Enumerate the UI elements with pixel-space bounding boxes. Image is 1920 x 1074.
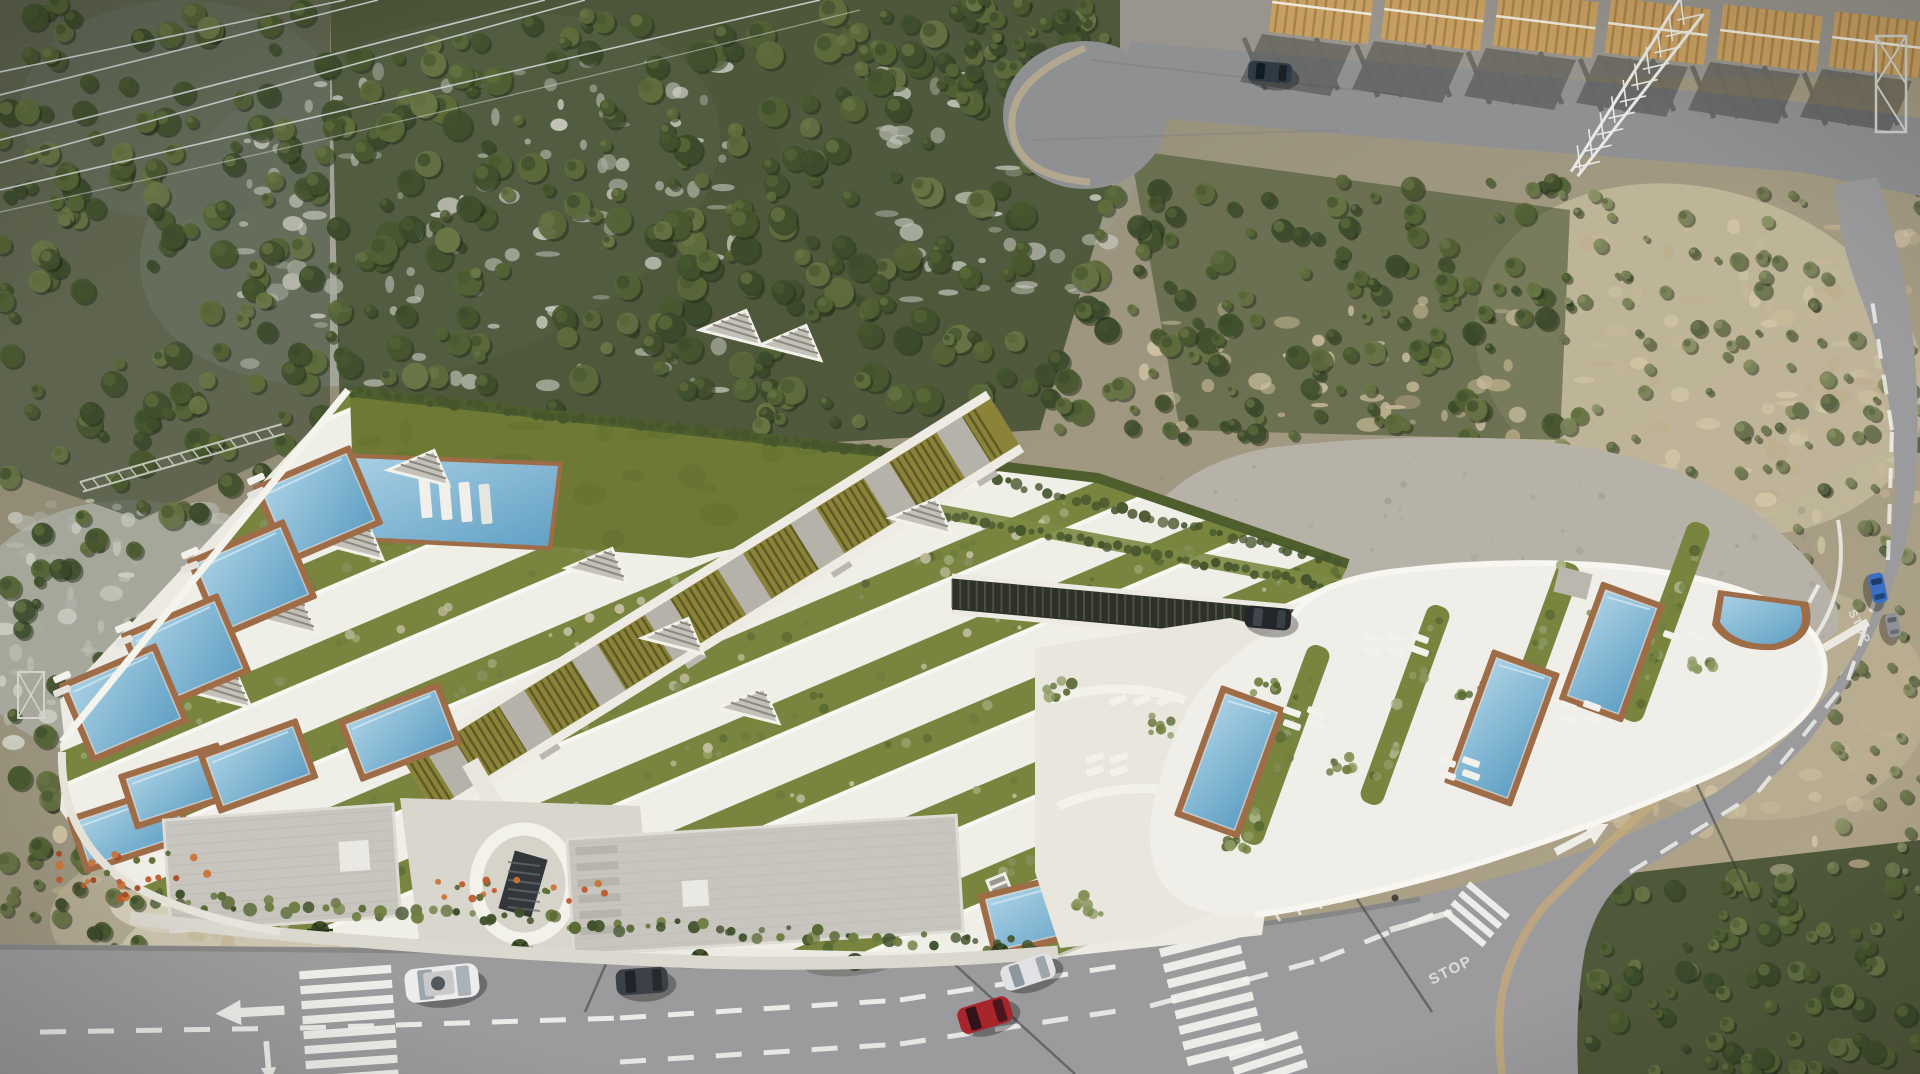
vignette <box>0 0 1920 1074</box>
aerial-photo: STOP STOP <box>0 0 1920 1074</box>
scene-svg: STOP STOP <box>0 0 1920 1074</box>
